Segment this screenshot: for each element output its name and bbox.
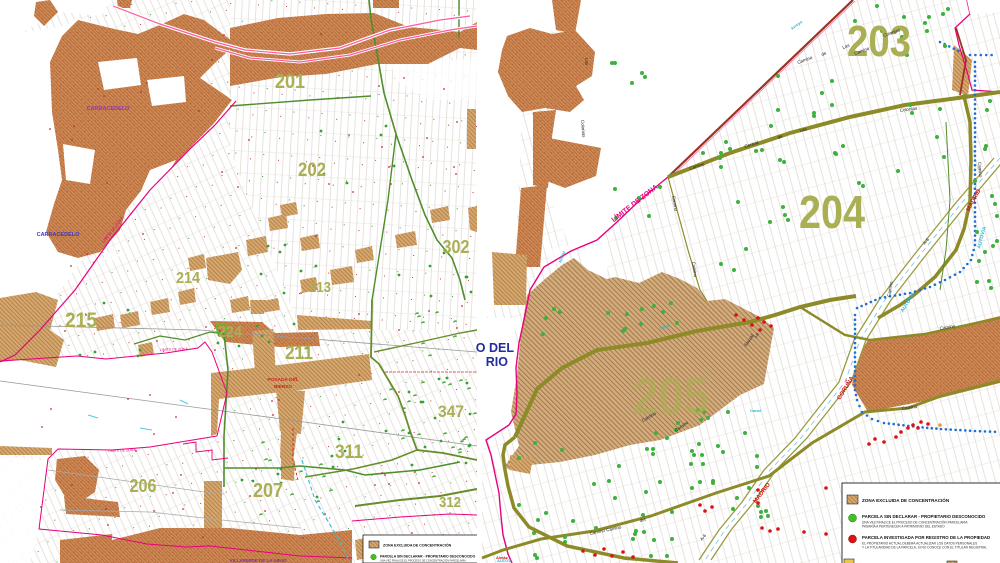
svg-text:PARCELA SIN DECLARAR - PROPIET: PARCELA SIN DECLARAR - PROPIETARIO DESCO… [380,555,476,559]
svg-text:Las: Las [584,58,590,66]
svg-text:PARCELA SIN DECLARAR - PROPIET: PARCELA SIN DECLARAR - PROPIETARIO DESCO… [862,514,986,519]
svg-text:203: 203 [847,17,911,66]
svg-text:ZONA EXCLUIDA DE CONCENTRACIÓN: ZONA EXCLUIDA DE CONCENTRACIÓN [862,496,950,503]
svg-text:201: 201 [275,71,305,93]
svg-text:RIO: RIO [486,355,509,369]
svg-text:CARRACEDELO: CARRACEDELO [87,106,131,112]
svg-text:211: 211 [285,343,313,364]
svg-text:214: 214 [176,270,200,287]
svg-text:POSADA DEL: POSADA DEL [267,377,298,383]
svg-text:215: 215 [65,309,97,332]
svg-text:PARCELA INVESTIGADA POR REGIST: PARCELA INVESTIGADA POR REGISTRO DE LA P… [862,535,990,540]
svg-text:Y LA TITULARIDAD DE LA PARCELA: Y LA TITULARIDAD DE LA PARCELA, SI NO CO… [862,546,987,550]
svg-text:Canal: Canal [750,408,761,413]
svg-text:BIERZO: BIERZO [274,384,292,390]
svg-text:ZONA EXCLUIDA DE CONCENTRACIÓN: ZONA EXCLUIDA DE CONCENTRACIÓN [383,543,452,548]
svg-text:302: 302 [443,237,470,257]
svg-text:202: 202 [298,160,326,181]
svg-text:224: 224 [218,324,242,341]
svg-text:207: 207 [253,480,283,502]
svg-text:204: 204 [799,186,865,238]
svg-text:347: 347 [438,402,464,421]
svg-text:312: 312 [439,494,461,511]
svg-text:311: 311 [335,442,363,463]
svg-text:206: 206 [130,476,157,496]
svg-text:PASARÍA A PERTENECER A PATRIMO: PASARÍA A PERTENECER A PATRIMONIO DEL ES… [862,525,945,529]
svg-text:AUTOV: AUTOV [497,558,511,563]
svg-text:213: 213 [309,279,331,296]
svg-text:CARRACEDELO: CARRACEDELO [37,232,81,238]
svg-text:O DEL: O DEL [476,341,515,355]
svg-text:VILLAVERDE DE LA ABAD: VILLAVERDE DE LA ABAD [230,558,288,563]
